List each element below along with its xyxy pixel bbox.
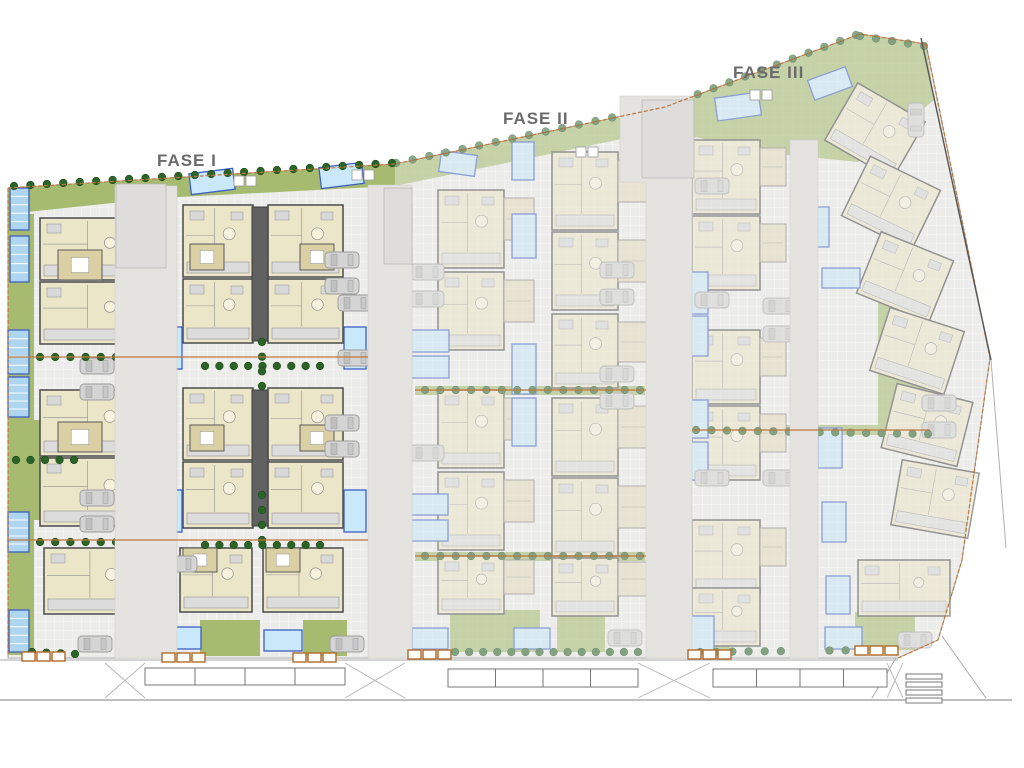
car-rear-window [186,559,191,570]
building-footprint [760,148,786,186]
car-rear-window [911,126,922,131]
step-cell [423,650,436,659]
tree-icon [258,521,266,529]
car-rear-window [631,633,636,644]
furniture-symbol [559,404,573,413]
tree-icon [924,430,932,438]
tree-icon [240,168,248,176]
terrace [556,461,614,472]
swimming-pool [826,576,850,614]
tree-icon [27,456,35,464]
table-symbol [312,299,324,311]
parked-car [695,470,729,486]
car-body [80,490,114,506]
tree-icon [856,32,864,40]
furniture-symbol [321,395,333,403]
table-symbol [223,299,235,311]
tree-icon [216,541,224,549]
pool-water [512,142,534,180]
terrace [696,389,756,400]
pool-water [514,628,550,649]
car-windshield [769,329,775,340]
swimming-pool [412,628,448,649]
car-windshield [86,387,92,398]
swimming-pool [512,214,536,258]
pergola-symbol [364,170,374,180]
tree-icon [109,176,117,184]
tree-icon [125,175,133,183]
car-body [80,384,114,400]
furniture-symbol [231,469,243,477]
terrace [556,215,614,226]
car-windshield [614,633,620,644]
parking-pad [384,188,412,264]
car-rear-window [433,294,438,305]
table-symbol [731,354,743,366]
tree-icon [43,180,51,188]
furniture-symbol [445,196,459,205]
street-parking-bay [713,669,887,687]
tree-icon [522,648,530,656]
building-footprint [552,558,618,616]
furniture-symbol [596,239,608,247]
building-footprint [190,244,224,270]
tree-icon [465,648,473,656]
step-cell [293,653,306,662]
furniture-symbol [865,566,879,575]
car-body [600,262,634,278]
parked-car [325,441,359,457]
car-windshield [344,353,350,364]
table-symbol [104,479,116,491]
car-body [908,103,924,137]
car-windshield [904,635,910,646]
pergola-symbol [352,170,362,180]
tree-icon [745,648,753,656]
tree-icon [60,179,68,187]
furniture-symbol [738,337,750,345]
pool-water [822,268,860,288]
pergola-symbol [762,90,772,100]
parked-car [410,445,444,461]
car-windshield [331,281,337,292]
terrace [272,328,339,339]
building-footprint [618,486,648,528]
car-rear-window [433,267,438,278]
furniture-symbol [190,468,204,477]
table-symbol [590,576,600,586]
car-windshield [416,448,422,459]
tree-icon [493,648,501,656]
pool-water [408,356,449,378]
car-rear-window [361,353,366,364]
furniture-symbol [559,564,573,573]
car-body [410,445,444,461]
bed-symbol [71,258,89,273]
car-body [325,441,359,457]
parked-car [410,291,444,307]
building-footprint [760,338,786,376]
terrace [184,597,248,608]
furniture-symbol [445,478,459,487]
tree-icon [770,428,778,436]
car-rear-window [623,265,628,276]
pergola-symbol [576,147,586,157]
car-rear-window [921,635,926,646]
tree-icon [302,362,310,370]
step-cell [408,650,421,659]
furniture-symbol [275,285,289,294]
swimming-pool [514,628,550,649]
parked-car [80,384,114,400]
pool-water [10,236,29,282]
table-symbol [914,577,924,587]
stair-core [252,207,268,341]
car-rear-window [718,473,723,484]
swimming-pool [408,330,449,352]
step-cell [323,653,336,662]
parked-car [325,252,359,268]
tree-icon [620,648,628,656]
car-body [410,291,444,307]
building-footprint [190,425,224,451]
table-symbol [476,497,488,509]
car-rear-window [348,418,353,429]
table-symbol [731,164,743,176]
car-windshield [416,294,422,305]
tree-icon [230,541,238,549]
furniture-symbol [699,222,713,231]
car-rear-window [103,387,108,398]
step-cell [162,653,175,662]
tree-icon [355,161,363,169]
furniture-symbol [559,484,573,493]
swimming-pool [410,520,448,541]
tree-icon [306,164,314,172]
car-windshield [331,418,337,429]
crosswalk-bar [906,690,942,695]
tree-icon [739,427,747,435]
tree-icon [287,541,295,549]
car-rear-window [433,448,438,459]
terrace [556,601,614,612]
phase-label-3: FASE III [733,63,804,82]
street-parking-bay [448,669,638,687]
building-footprint [618,406,648,448]
tree-icon [76,178,84,186]
furniture-symbol [596,321,608,329]
car-windshield [769,473,775,484]
parked-car [695,292,729,308]
car-windshield [331,255,337,266]
tree-icon [372,160,380,168]
table-symbol [104,301,115,312]
building-footprint [252,390,268,526]
swimming-pool [512,398,536,446]
step-cell [177,653,190,662]
tree-icon [442,149,450,157]
bed-symbol [200,251,214,264]
furniture-symbol [321,469,333,477]
tree-icon [201,362,209,370]
tree-icon [258,368,266,376]
car-body [922,395,956,411]
driveway-mark [638,663,710,698]
car-windshield [344,298,350,309]
furniture-symbol [482,397,494,405]
terrace [267,597,339,608]
car-rear-window [101,639,106,650]
car-windshield [606,292,612,303]
furniture-symbol [699,146,713,155]
tree-icon [550,648,558,656]
site-plan-drawing: FASE IFASE IIFASE III [0,0,1024,768]
tree-icon [67,538,75,546]
tree-icon [273,166,281,174]
parked-car [600,289,634,305]
tree-icon [175,172,183,180]
driveway-mark [345,663,405,698]
bed-symbol [310,251,324,264]
tree-icon [761,647,769,655]
tree-icon [634,648,642,656]
tree-icon [508,648,516,656]
tree-icon [51,538,59,546]
entrance-steps [408,650,451,659]
furniture-symbol [482,279,494,287]
furniture-symbol [275,211,289,220]
step-cell [438,650,451,659]
car-body [325,278,359,294]
boundary-line-gray [991,360,1006,548]
swimming-pool [10,236,29,282]
step-cell [22,652,35,661]
car-rear-window [103,493,108,504]
car-rear-window [623,292,628,303]
building-footprint [692,140,760,214]
terrace [442,599,500,610]
road [790,140,818,658]
tree-icon [909,430,917,438]
pool-water [8,377,29,417]
parking-pad [116,184,166,268]
tree-icon [207,170,215,178]
furniture-symbol [445,562,459,571]
step-cell [192,653,205,662]
furniture-symbol [928,567,940,575]
car-rear-window [718,295,723,306]
tree-icon [451,648,459,656]
green-area [200,620,260,656]
building-footprint [858,560,950,616]
furniture-symbol [47,224,61,233]
car-body [600,289,634,305]
furniture-symbol [559,238,573,247]
boundary-line-gray [942,636,986,698]
car-rear-window [623,369,628,380]
car-rear-window [353,639,358,650]
parked-car [410,264,444,280]
car-windshield [606,369,612,380]
car-windshield [84,639,90,650]
car-windshield [701,181,707,192]
car-windshield [928,398,934,409]
building-footprint [618,322,648,362]
tree-icon [479,648,487,656]
entrance-steps [162,653,205,662]
furniture-symbol [230,555,242,563]
table-symbol [312,411,324,423]
car-body [78,636,112,652]
bed-symbol [71,430,89,445]
tree-icon [893,430,901,438]
furniture-symbol [738,527,750,535]
furniture-symbol [47,288,61,297]
table-symbol [590,503,602,515]
tree-icon [578,648,586,656]
building-footprint [552,152,618,230]
car-rear-window [348,281,353,292]
tree-icon [36,538,44,546]
terrace [272,513,339,524]
parked-car [80,516,114,532]
step-cell [308,653,321,662]
tree-icon [27,181,35,189]
building-footprint [58,422,102,452]
site-plan-stage: FASE IFASE IIFASE III [0,0,1024,768]
building-footprint [438,556,504,614]
building-footprint [552,398,618,476]
pool-water [8,512,29,552]
car-body [695,292,729,308]
parked-car [80,490,114,506]
crosswalk-bar [906,682,942,687]
step-cell [688,650,701,659]
building-footprint [692,520,760,594]
furniture-symbol [231,395,243,403]
tree-icon [10,182,18,190]
car-rear-window [623,396,628,407]
building-footprint [252,207,268,341]
car-body [330,636,364,652]
table-symbol [312,482,324,494]
step-cell [718,650,731,659]
crosswalk-bar [906,698,942,703]
terrace [442,335,500,346]
step-cell [37,652,50,661]
bed-symbol [200,432,214,445]
building-footprint [760,528,786,566]
furniture-symbol [445,396,459,405]
table-symbol [732,606,742,616]
parked-car [695,178,729,194]
tree-icon [536,648,544,656]
table-symbol [731,240,743,252]
pergola-symbol [588,147,598,157]
car-rear-window [103,361,108,372]
furniture-symbol [231,212,243,220]
furniture-symbol [482,479,494,487]
tree-icon [287,362,295,370]
furniture-symbol [275,468,289,477]
terrace [187,513,249,524]
swimming-pool [822,502,846,542]
table-symbol [223,228,235,240]
pergola-symbol [234,176,244,186]
furniture-symbol [321,212,333,220]
furniture-symbol [47,464,61,473]
tree-icon [606,648,614,656]
parked-car [78,636,112,652]
tree-icon [754,427,762,435]
building-footprint [266,548,300,572]
car-body [325,252,359,268]
pool-water [822,502,846,542]
table-symbol [104,237,115,248]
pool-water [512,398,536,446]
swimming-pool [512,142,534,180]
building-footprint [183,279,253,343]
pool-water [264,630,302,651]
tree-icon [70,456,78,464]
tree-icon [777,647,785,655]
driveway-mark [887,663,903,698]
building-footprint [438,390,504,468]
car-body [608,630,642,646]
terrace [187,328,249,339]
parked-car [330,636,364,652]
building-footprint [552,478,618,556]
tree-icon [842,647,850,655]
step-cell [885,646,898,655]
terrace [442,535,500,546]
tree-icon [244,362,252,370]
tree-icon [71,650,79,658]
tree-icon [12,456,20,464]
crosswalk [906,674,942,703]
stair-core [252,390,268,526]
terrace [442,253,500,264]
table-symbol [223,411,235,423]
tree-icon [258,506,266,514]
tree-icon [322,163,330,171]
tree-icon [216,362,224,370]
furniture-symbol [482,197,494,205]
furniture-symbol [275,394,289,403]
terrace [862,601,946,612]
furniture-symbol [738,223,750,231]
tree-icon [92,177,100,185]
phase-label-2: FASE II [503,109,569,128]
car-rear-window [361,298,366,309]
building-footprint [504,280,534,322]
terrace [696,199,756,210]
car-windshield [86,493,92,504]
tree-icon [191,171,199,179]
building-footprint [504,560,534,594]
parked-car [338,295,372,311]
pool-water [9,610,29,652]
furniture-symbol [231,286,243,294]
entrance-steps [855,646,898,655]
tree-icon [316,362,324,370]
furniture-symbol [47,396,61,405]
tree-icon [273,541,281,549]
tree-icon [542,128,550,136]
step-cell [870,646,883,655]
table-symbol [310,568,322,580]
parked-car [600,366,634,382]
